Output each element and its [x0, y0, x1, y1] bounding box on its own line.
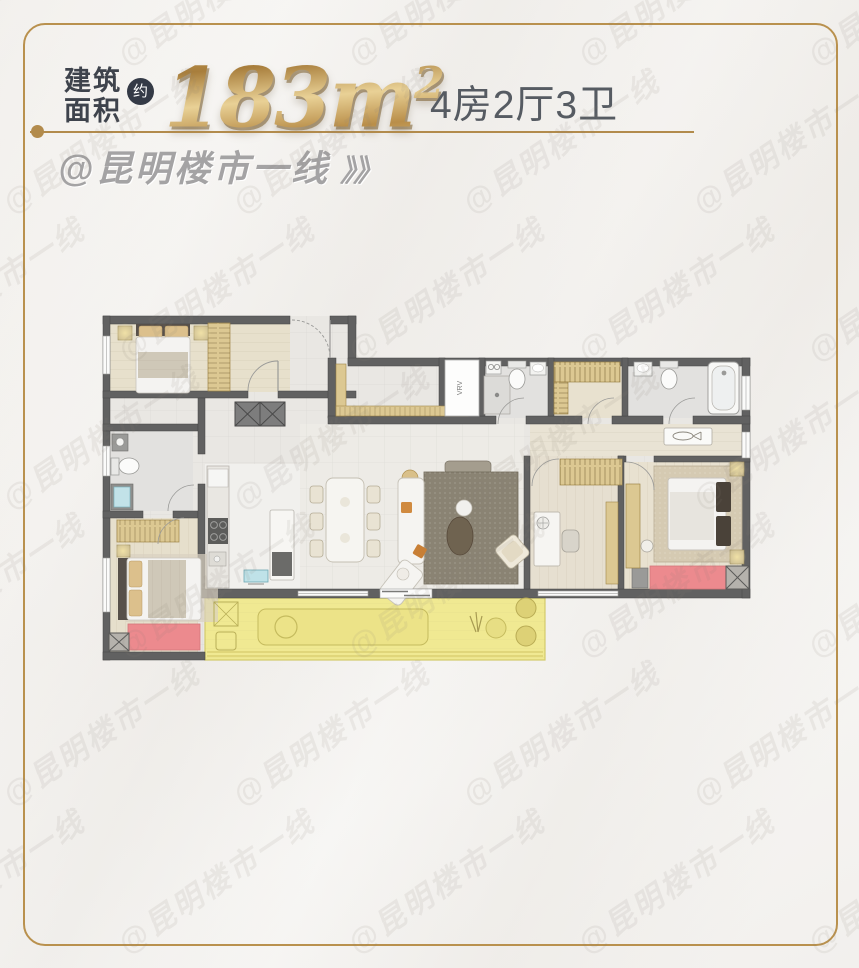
vrv-label: VRV [457, 381, 464, 396]
gold-divider-line [30, 131, 694, 133]
floor-plan-drawing: VRV [98, 306, 760, 668]
foyer-cabinet [235, 402, 285, 426]
watermark-text: @昆明楼市一线 [0, 797, 93, 962]
area-label-line2: 面积 [64, 96, 122, 126]
floor-plan: VRV [98, 306, 760, 668]
gold-divider-dot [31, 125, 44, 138]
watermark-text: @昆明楼市一线 [682, 649, 859, 814]
watermark-text: @昆明楼市一线 [222, 649, 438, 814]
watermark-text: @昆明楼市一线 [0, 0, 93, 75]
watermark-text: @昆明楼市一线 [452, 649, 668, 814]
approx-badge: 约 [127, 78, 154, 105]
vrv-platform: VRV [445, 360, 479, 416]
hall-console [664, 428, 712, 445]
watermark-text: @昆明楼市一线 [0, 501, 93, 666]
area-label: 建筑 面积 [64, 66, 122, 126]
master-balcony-red [650, 566, 726, 589]
area-label-line1: 建筑 [64, 66, 122, 96]
dining-area [310, 478, 380, 562]
area-value: 183m2 [164, 38, 445, 144]
brand-handle-text: @昆明楼市一线 [58, 148, 330, 189]
watermark-text: @昆明楼市一线 [107, 797, 323, 962]
watermark-text: @昆明楼市一线 [0, 205, 93, 370]
double-chevron-icon: 》》 [340, 155, 381, 188]
watermark-text: @昆明楼市一线 [337, 797, 553, 962]
watermark-text: @昆明楼市一线 [567, 0, 783, 75]
watermark-text: @昆明楼市一线 [797, 205, 859, 370]
bedroom2-balcony-red [128, 624, 200, 650]
watermark-text: @昆明楼市一线 [797, 797, 859, 962]
watermark-text: @昆明楼市一线 [0, 649, 208, 814]
watermark-text: @昆明楼市一线 [797, 0, 859, 75]
watermark-text: @昆明楼市一线 [567, 797, 783, 962]
watermark-text: @昆明楼市一线 [797, 501, 859, 666]
brand-handle: @昆明楼市一线》》 [58, 140, 381, 192]
watermark-text: @昆明楼市一线 [682, 57, 859, 222]
layout-text: 4房2厅3卫 [430, 74, 618, 130]
poster-canvas: { "header": { "area_label_line1": "建筑", … [0, 0, 859, 968]
